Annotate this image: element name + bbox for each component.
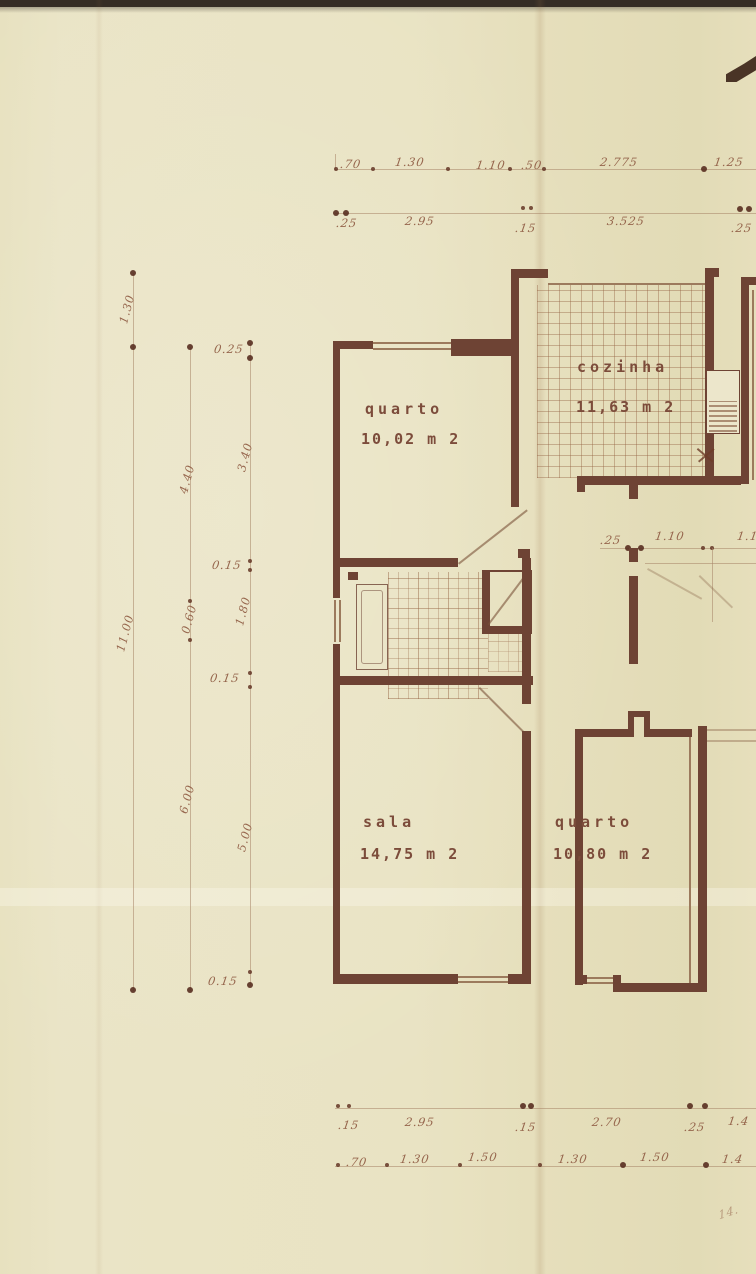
dim-label: 1.4 <box>721 1152 744 1166</box>
dim-tick <box>248 568 252 572</box>
dim-tick <box>247 340 253 346</box>
dim-label: 4.40 <box>176 463 197 495</box>
faint-line <box>707 729 756 731</box>
dim-tick <box>542 167 546 171</box>
window-line <box>587 977 615 979</box>
dim-label: 1.50 <box>467 1150 499 1164</box>
dim-tick <box>521 206 525 210</box>
dim-tick <box>248 671 252 675</box>
dim-tick <box>187 987 193 993</box>
wall-segment <box>577 476 585 492</box>
wall-segment <box>333 974 458 984</box>
dim-tick <box>248 970 252 974</box>
wall-segment <box>741 277 749 484</box>
dim-tick <box>701 166 707 172</box>
floor-plan-scan: .70 1.30 1.10 .50 2.775 1.25 .25 2.95 .1… <box>0 0 756 1274</box>
kitchen-tile-floor <box>537 285 705 478</box>
wall-segment <box>648 729 692 737</box>
dim-tick <box>371 167 375 171</box>
dim-label: .25 <box>599 533 622 547</box>
dim-label: 1.1 <box>736 529 756 543</box>
dim-tick <box>247 355 253 361</box>
dim-tick <box>130 270 136 276</box>
wall-segment <box>522 731 531 984</box>
wall-thin-line <box>752 290 754 480</box>
dim-label: 2.95 <box>404 1115 436 1129</box>
dim-line <box>335 1108 756 1109</box>
wall-segment <box>575 729 632 737</box>
kitchen-sink-hatch <box>709 401 737 432</box>
dim-tick <box>336 1163 340 1167</box>
dim-label: 1.10 <box>475 158 507 172</box>
dim-tick <box>248 559 252 563</box>
dim-tick <box>336 1104 340 1108</box>
room-area-quarto2: 10,80 m 2 <box>553 845 652 863</box>
dim-tick <box>687 1103 693 1109</box>
dim-label: .15 <box>337 1118 360 1132</box>
scan-top-edge-shadow <box>0 7 756 13</box>
room-label-quarto1: quarto <box>365 400 443 418</box>
wall-segment <box>451 339 513 356</box>
dim-label: 2.775 <box>599 155 639 169</box>
dim-label: 3.525 <box>606 214 646 228</box>
wall-segment <box>511 269 519 507</box>
dim-tick <box>347 1104 351 1108</box>
dim-label: 14. <box>718 1202 740 1223</box>
wall-segment <box>698 726 707 992</box>
dim-label: .50 <box>520 158 543 172</box>
dim-tick <box>638 545 644 551</box>
dim-tick <box>187 344 193 350</box>
dim-label: 6.00 <box>176 783 197 815</box>
dim-tick <box>334 167 338 171</box>
dim-tick <box>130 987 136 993</box>
dim-tick <box>458 1163 462 1167</box>
door-swing-line <box>647 568 702 599</box>
wall-segment <box>629 548 638 562</box>
dim-label: .15 <box>514 221 537 235</box>
dim-label: 1.25 <box>713 155 745 169</box>
faint-line <box>712 548 713 622</box>
dim-tick <box>248 685 252 689</box>
window-line <box>458 981 508 983</box>
wall-segment <box>577 476 741 485</box>
room-label-quarto2: quarto <box>555 813 633 831</box>
dim-label: 0.15 <box>209 671 241 685</box>
dim-label: 0.15 <box>211 558 243 572</box>
wall-segment <box>629 485 638 499</box>
dim-tick <box>529 206 533 210</box>
wall-thin-line <box>548 283 705 285</box>
room-area-quarto1: 10,02 m 2 <box>361 430 460 448</box>
dim-tick <box>702 1103 708 1109</box>
dim-tick <box>528 1103 534 1109</box>
room-label-cozinha: cozinha <box>577 358 668 376</box>
dim-tick <box>446 167 450 171</box>
dim-tick <box>130 344 136 350</box>
dim-tick <box>737 206 743 212</box>
window-line <box>373 348 453 350</box>
dim-tick <box>620 1162 626 1168</box>
dim-label: .25 <box>730 221 753 235</box>
dim-label: 1.30 <box>116 293 137 325</box>
bathtub-inner <box>361 590 383 664</box>
faint-line <box>645 563 756 564</box>
dim-line <box>190 347 191 991</box>
dim-label: 0.15 <box>207 974 239 988</box>
dim-label: .15 <box>514 1120 537 1134</box>
window-line <box>458 976 508 978</box>
wall-segment <box>333 558 458 567</box>
dim-tick <box>520 1103 526 1109</box>
dim-label: .70 <box>339 157 362 171</box>
dim-tick <box>508 167 512 171</box>
window-line <box>339 600 341 642</box>
wall-segment <box>333 676 533 685</box>
dim-label: 1.4 <box>727 1114 750 1128</box>
wall-segment <box>508 974 531 984</box>
dim-label: 5.00 <box>234 821 255 853</box>
dim-tick <box>188 599 192 603</box>
dim-label: 1.30 <box>394 155 426 169</box>
paper-crease <box>95 0 103 1274</box>
dim-label: 0.25 <box>213 342 245 356</box>
scan-top-edge-bar <box>0 0 756 7</box>
dim-tick <box>247 982 253 988</box>
dim-line <box>335 213 756 214</box>
wall-segment <box>518 549 530 558</box>
window-line <box>334 600 336 642</box>
faint-line <box>707 740 756 742</box>
scan-light-band <box>0 888 756 906</box>
dim-label: 2.70 <box>591 1115 623 1129</box>
dim-line <box>133 273 134 991</box>
dim-label: 1.30 <box>557 1152 589 1166</box>
dim-label: .25 <box>335 216 358 230</box>
dim-line <box>250 343 251 986</box>
wall-thin-line <box>689 737 691 985</box>
dim-tick <box>188 638 192 642</box>
dim-label: 0.60 <box>178 603 199 635</box>
dim-tick <box>746 206 752 212</box>
dim-label: .70 <box>345 1155 368 1169</box>
dim-tick <box>703 1162 709 1168</box>
dim-label: 2.95 <box>404 214 436 228</box>
pen-wedge-mark <box>726 56 756 82</box>
dim-line <box>600 548 756 549</box>
dim-label: 1.50 <box>639 1150 671 1164</box>
room-label-sala: sala <box>363 813 415 831</box>
dim-label: 1.10 <box>654 529 686 543</box>
dim-tick <box>538 1163 542 1167</box>
dim-tick <box>701 546 705 550</box>
dim-line <box>335 1166 756 1167</box>
wall-segment <box>575 975 587 984</box>
room-area-cozinha: 11,63 m 2 <box>576 398 675 416</box>
wall-segment <box>629 576 638 664</box>
wall-segment <box>348 572 358 580</box>
wall-segment <box>613 983 707 992</box>
paper-crease <box>534 0 546 1274</box>
wall-segment <box>333 644 340 984</box>
dim-label: 1.30 <box>399 1152 431 1166</box>
dim-tick <box>385 1163 389 1167</box>
window-line <box>587 982 615 984</box>
door-swing-line <box>479 687 524 732</box>
window-line <box>373 342 453 344</box>
dim-label: .25 <box>683 1120 706 1134</box>
door-swing-line <box>699 575 733 608</box>
room-area-sala: 14,75 m 2 <box>360 845 459 863</box>
dim-label: 3.40 <box>234 441 255 473</box>
